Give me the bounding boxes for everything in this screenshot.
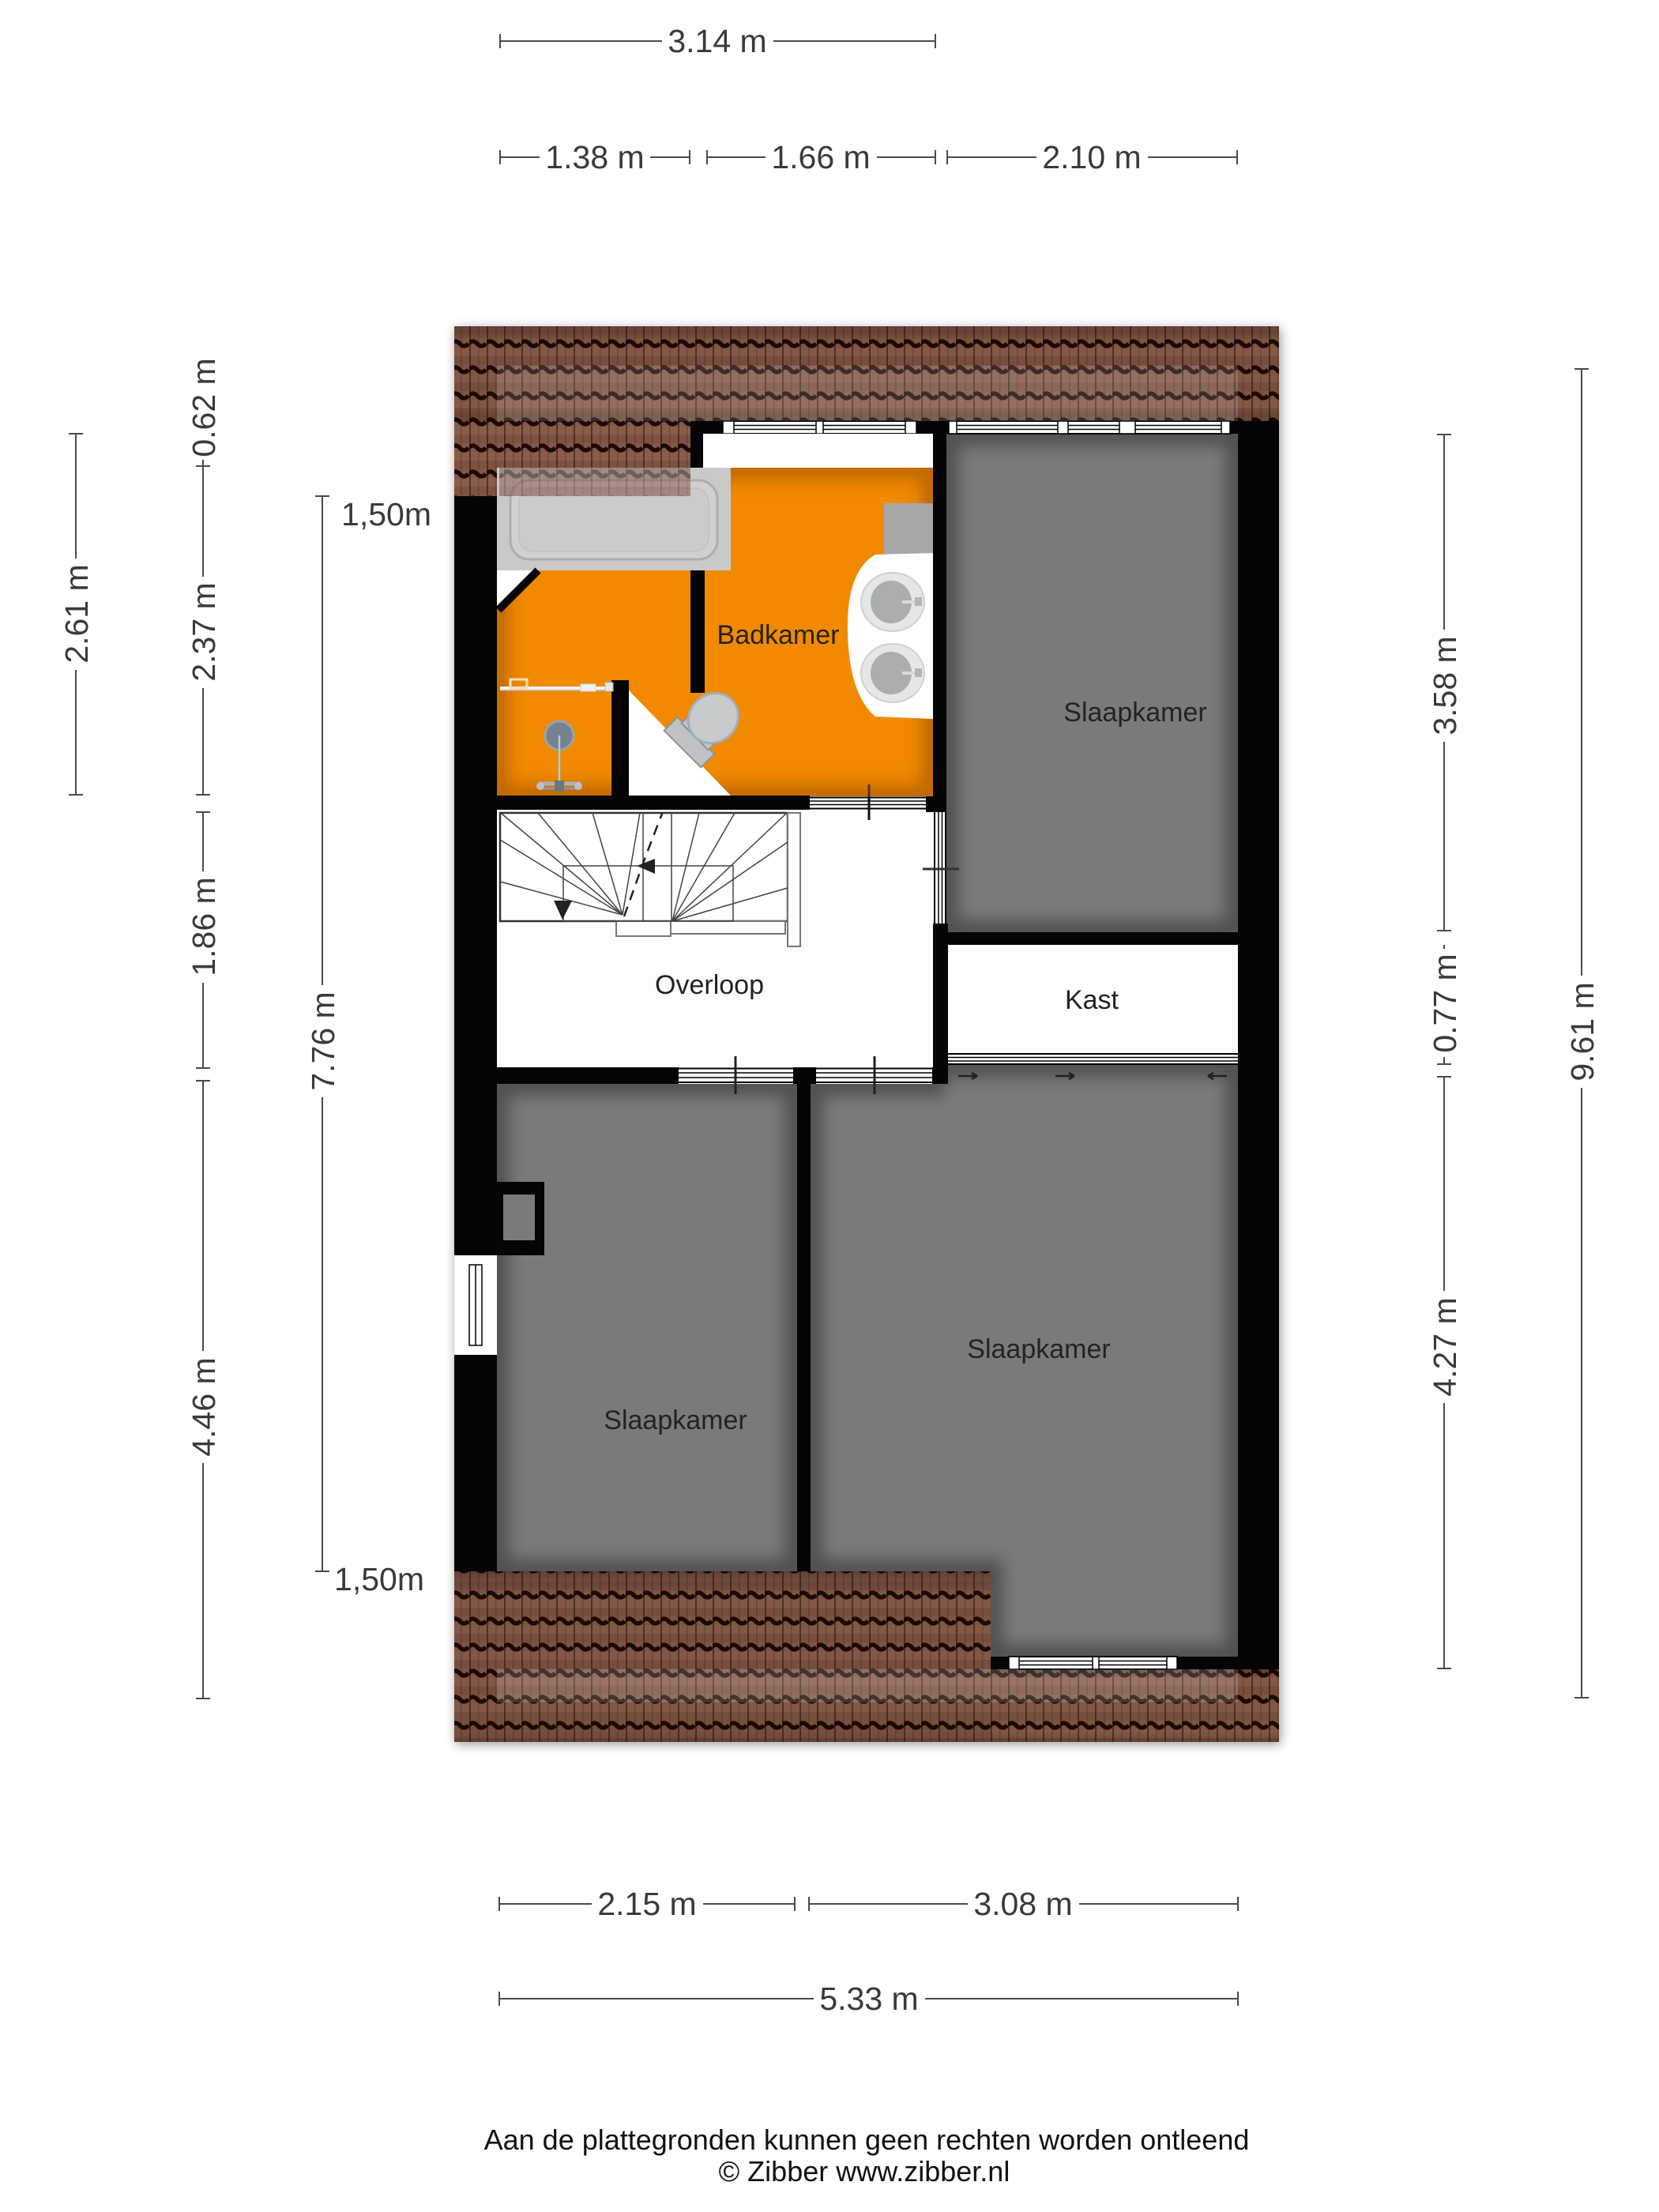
svg-text:5.33 m: 5.33 m [819,1981,918,2017]
svg-text:2.10 m: 2.10 m [1042,139,1141,175]
svg-text:1,50m: 1,50m [341,496,431,532]
svg-text:Slaapkamer: Slaapkamer [1063,698,1206,728]
svg-text:1.66 m: 1.66 m [771,139,870,175]
svg-text:3.58 m: 3.58 m [1427,636,1463,735]
svg-text:3.08 m: 3.08 m [973,1886,1072,1922]
svg-text:4.46 m: 4.46 m [186,1357,222,1456]
svg-text:Slaapkamer: Slaapkamer [604,1405,747,1435]
svg-text:Slaapkamer: Slaapkamer [967,1334,1110,1364]
svg-text:1.38 m: 1.38 m [545,139,644,175]
svg-text:2.15 m: 2.15 m [597,1886,696,1922]
svg-text:3.14 m: 3.14 m [668,23,766,59]
svg-text:4.27 m: 4.27 m [1427,1297,1463,1396]
svg-text:Aan de plattegronden kunnen ge: Aan de plattegronden kunnen geen rechten… [484,2124,1250,2156]
svg-text:2.37 m: 2.37 m [186,582,222,681]
svg-text:© Zibber www.zibber.nl: © Zibber www.zibber.nl [719,2155,1010,2188]
svg-text:9.61 m: 9.61 m [1564,982,1601,1081]
svg-text:1,50m: 1,50m [334,1561,424,1597]
svg-text:0.62 m: 0.62 m [186,358,222,457]
svg-text:Badkamer: Badkamer [717,620,840,650]
svg-text:Overloop: Overloop [655,970,764,1000]
svg-text:7.76 m: 7.76 m [305,991,341,1090]
svg-text:Kast: Kast [1065,985,1119,1015]
svg-text:0.77 m: 0.77 m [1427,954,1463,1052]
svg-text:1.86 m: 1.86 m [186,877,222,976]
svg-text:2.61 m: 2.61 m [58,564,95,663]
